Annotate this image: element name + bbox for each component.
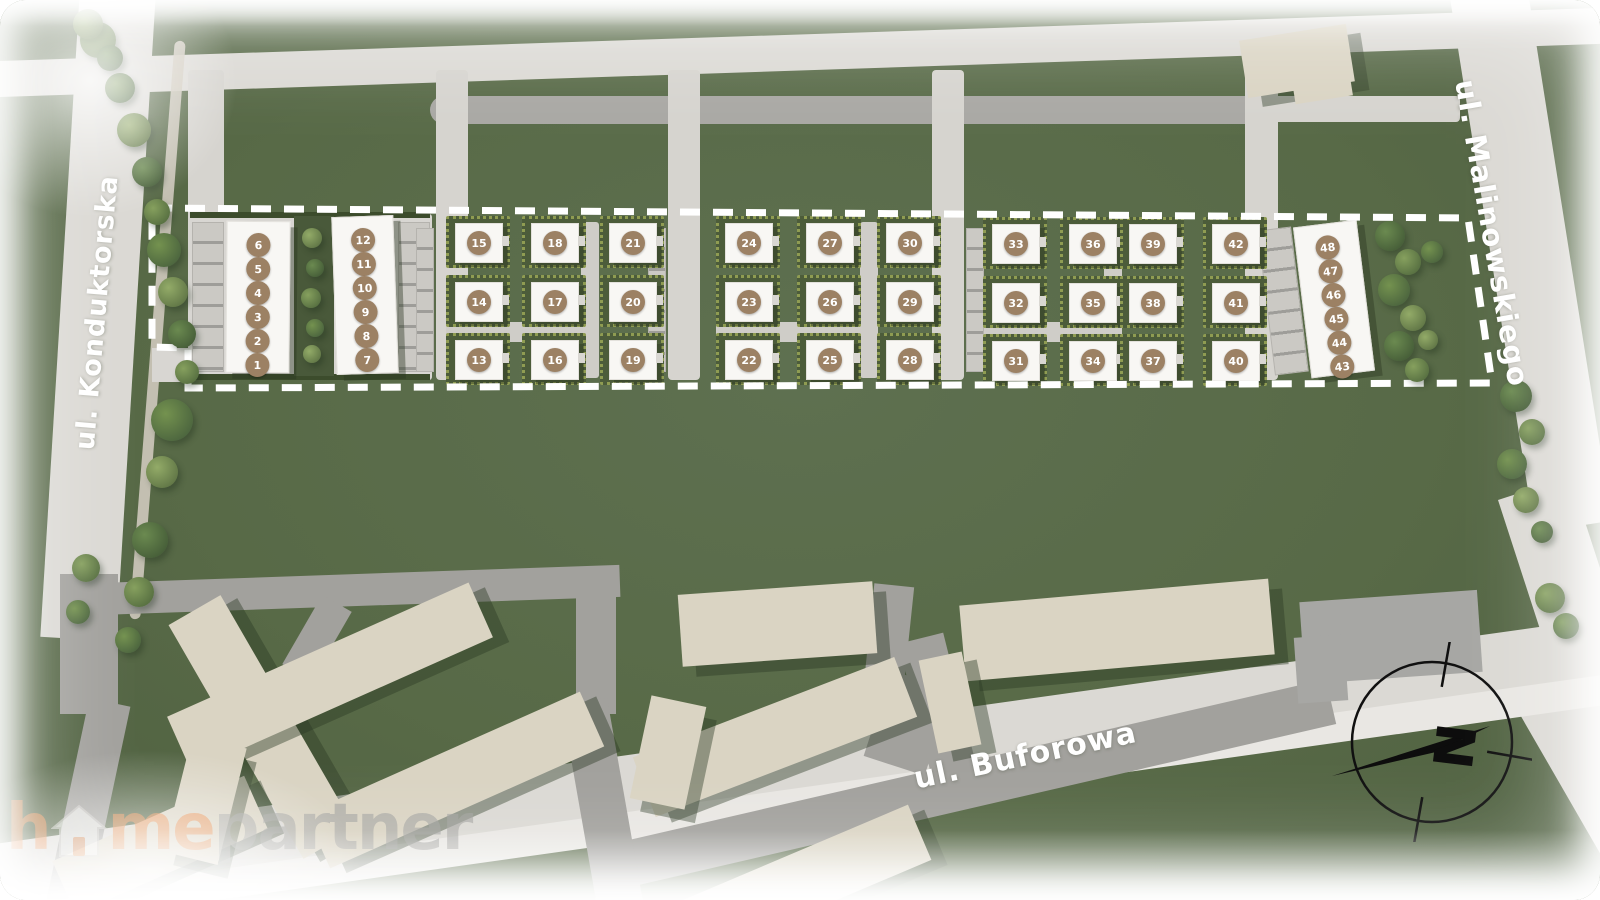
- parking-strip: [416, 228, 434, 372]
- unit-badge[interactable]: 17: [543, 290, 567, 314]
- unit-badge[interactable]: 13: [467, 348, 491, 372]
- unit-badge[interactable]: 29: [898, 290, 922, 314]
- unit-badge[interactable]: 40: [1224, 349, 1248, 373]
- tree: [132, 522, 168, 558]
- tree: [306, 259, 324, 277]
- tree: [1497, 449, 1527, 479]
- unit-badge[interactable]: 7: [355, 348, 380, 373]
- house-plot[interactable]: 16: [522, 333, 586, 385]
- unit-badge[interactable]: 3: [246, 305, 270, 329]
- unit-badge[interactable]: 32: [1004, 291, 1028, 315]
- site-plan-canvas: 654321 121110987 484746454443 1514131817…: [0, 0, 1600, 900]
- house-unit[interactable]: 37: [1129, 341, 1177, 381]
- logo-text-h: h: [6, 796, 50, 860]
- house-unit[interactable]: 36: [1069, 224, 1117, 264]
- house-plot[interactable]: 26: [797, 275, 861, 327]
- unit-badge[interactable]: 41: [1224, 291, 1248, 315]
- tree: [117, 113, 151, 147]
- unit-badge[interactable]: 48: [1314, 234, 1341, 261]
- tree: [144, 199, 170, 225]
- house-plot[interactable]: 25: [797, 333, 861, 385]
- unit-badge[interactable]: 39: [1141, 232, 1165, 256]
- tree: [115, 627, 141, 653]
- house-plot[interactable]: 32: [983, 276, 1047, 328]
- house-unit[interactable]: 39: [1129, 224, 1177, 264]
- unit-badge[interactable]: 33: [1004, 232, 1028, 256]
- tree: [1531, 521, 1553, 543]
- path: [60, 574, 118, 714]
- house-unit[interactable]: 17: [531, 282, 579, 322]
- tree: [132, 157, 162, 187]
- house-unit[interactable]: 25: [806, 340, 854, 380]
- house-plot[interactable]: 38: [1120, 276, 1184, 328]
- unit-badge[interactable]: 2: [246, 329, 270, 353]
- path: [95, 565, 621, 615]
- unit-badge[interactable]: 44: [1326, 329, 1353, 356]
- house-unit[interactable]: 38: [1129, 283, 1177, 323]
- tree: [105, 73, 135, 103]
- house-unit[interactable]: 28: [886, 340, 934, 380]
- house-plot[interactable]: 41: [1203, 276, 1267, 328]
- unit-badge[interactable]: 11: [352, 252, 377, 277]
- unit-badge[interactable]: 47: [1317, 258, 1344, 285]
- slab-building[interactable]: 654321: [225, 221, 290, 374]
- unit-badge[interactable]: 16: [543, 348, 567, 372]
- house-unit[interactable]: 15: [455, 223, 503, 263]
- unit-badge[interactable]: 26: [818, 290, 842, 314]
- unit-badge[interactable]: 23: [737, 290, 761, 314]
- unit-badge[interactable]: 21: [621, 231, 645, 255]
- unit-badge[interactable]: 30: [898, 231, 922, 255]
- unit-badge[interactable]: 10: [352, 276, 377, 301]
- house-plot[interactable]: 31: [983, 334, 1047, 386]
- unit-badge[interactable]: 1: [245, 353, 269, 377]
- house-unit[interactable]: 35: [1069, 283, 1117, 323]
- unit-badge[interactable]: 37: [1141, 349, 1165, 373]
- house-plot[interactable]: 18: [522, 216, 586, 268]
- unit-badge[interactable]: 38: [1141, 291, 1165, 315]
- house-plot[interactable]: 20: [600, 275, 664, 327]
- tree: [158, 277, 188, 307]
- house-plot[interactable]: 17: [522, 275, 586, 327]
- house-plot[interactable]: 35: [1060, 276, 1124, 328]
- house-plot[interactable]: 22: [716, 333, 780, 385]
- existing-building: [1289, 54, 1353, 105]
- tree: [1400, 305, 1426, 331]
- existing-building: [959, 579, 1274, 682]
- unit-badge[interactable]: 24: [737, 231, 761, 255]
- house-unit[interactable]: 27: [806, 223, 854, 263]
- tree: [301, 288, 321, 308]
- road-internal-gray: [430, 96, 1282, 124]
- unit-badge[interactable]: 43: [1329, 353, 1356, 380]
- logo-text-me: me: [108, 796, 214, 860]
- unit-badge[interactable]: 42: [1224, 232, 1248, 256]
- tree: [1405, 358, 1429, 382]
- house-plot[interactable]: 42: [1203, 217, 1267, 269]
- unit-badge[interactable]: 15: [467, 231, 491, 255]
- unit-badge[interactable]: 18: [543, 231, 567, 255]
- section-drive: [860, 222, 878, 378]
- tree: [72, 554, 100, 582]
- house-plot[interactable]: 29: [877, 275, 941, 327]
- tree: [151, 399, 193, 441]
- house-unit[interactable]: 26: [806, 282, 854, 322]
- tree: [147, 233, 181, 267]
- house-unit[interactable]: 22: [725, 340, 773, 380]
- house-unit[interactable]: 19: [609, 340, 657, 380]
- house-plot[interactable]: 30: [877, 216, 941, 268]
- house-unit[interactable]: 41: [1212, 283, 1260, 323]
- house-unit[interactable]: 23: [725, 282, 773, 322]
- tree: [1535, 583, 1565, 613]
- house-plot[interactable]: 40: [1203, 334, 1267, 386]
- house-plot[interactable]: 39: [1120, 217, 1184, 269]
- parking-strip: [966, 228, 984, 372]
- tree: [1553, 613, 1579, 639]
- house-unit[interactable]: 20: [609, 282, 657, 322]
- unit-badge[interactable]: 12: [351, 228, 376, 253]
- house-plot[interactable]: 14: [446, 275, 510, 327]
- unit-badge[interactable]: 22: [737, 348, 761, 372]
- house-plot[interactable]: 36: [1060, 217, 1124, 269]
- tree: [1418, 330, 1438, 350]
- unit-badge[interactable]: 20: [621, 290, 645, 314]
- house-plot[interactable]: 28: [877, 333, 941, 385]
- house-unit[interactable]: 33: [992, 224, 1040, 264]
- house-plot[interactable]: 13: [446, 333, 510, 385]
- unit-badge[interactable]: 5: [246, 257, 270, 281]
- house-unit[interactable]: 40: [1212, 341, 1260, 381]
- tree: [146, 456, 178, 488]
- house-unit[interactable]: 32: [992, 283, 1040, 323]
- unit-badge[interactable]: 14: [467, 290, 491, 314]
- tree: [306, 319, 324, 337]
- tree: [1384, 331, 1414, 361]
- tree: [1513, 487, 1539, 513]
- house-unit[interactable]: 34: [1069, 341, 1117, 381]
- logo-text-partner: partner: [214, 796, 472, 860]
- house-unit[interactable]: 31: [992, 341, 1040, 381]
- tree: [1378, 274, 1410, 306]
- tree: [124, 577, 154, 607]
- house-unit[interactable]: 24: [725, 223, 773, 263]
- house-icon: [51, 800, 107, 860]
- house-unit[interactable]: 13: [455, 340, 503, 380]
- parking-strip: [192, 222, 224, 372]
- unit-badge[interactable]: 36: [1081, 232, 1105, 256]
- tree: [168, 320, 196, 348]
- unit-badge[interactable]: 25: [818, 348, 842, 372]
- house-plot[interactable]: 34: [1060, 334, 1124, 386]
- path: [576, 574, 616, 714]
- house-plot[interactable]: 37: [1120, 334, 1184, 386]
- unit-badge[interactable]: 46: [1320, 282, 1347, 309]
- tree: [97, 45, 123, 71]
- existing-building: [678, 581, 878, 666]
- unit-badge[interactable]: 31: [1004, 349, 1028, 373]
- unit-badge[interactable]: 9: [353, 300, 378, 325]
- unit-badge[interactable]: 4: [246, 281, 270, 305]
- tree: [73, 9, 103, 39]
- slab-building[interactable]: 121110987: [331, 215, 398, 375]
- house-unit[interactable]: 16: [531, 340, 579, 380]
- unit-badge[interactable]: 28: [898, 348, 922, 372]
- house-unit[interactable]: 21: [609, 223, 657, 263]
- unit-badge[interactable]: 8: [354, 324, 379, 349]
- unit-badge[interactable]: 45: [1323, 305, 1350, 332]
- unit-badge[interactable]: 34: [1081, 349, 1105, 373]
- tree: [66, 600, 90, 624]
- house-unit[interactable]: 18: [531, 223, 579, 263]
- tree: [175, 360, 199, 384]
- house-plot[interactable]: 19: [600, 333, 664, 385]
- tree: [302, 228, 322, 248]
- access-road-3: [668, 70, 700, 380]
- house-plot[interactable]: 33: [983, 217, 1047, 269]
- road-top: [0, 6, 1600, 98]
- house-unit[interactable]: 42: [1212, 224, 1260, 264]
- house-unit[interactable]: 30: [886, 223, 934, 263]
- unit-badge[interactable]: 27: [818, 231, 842, 255]
- compass: N: [1332, 642, 1532, 842]
- tree: [1395, 249, 1421, 275]
- unit-badge[interactable]: 6: [246, 233, 270, 257]
- house-plot[interactable]: 21: [600, 216, 664, 268]
- house-plot[interactable]: 15: [446, 216, 510, 268]
- tree: [1519, 419, 1545, 445]
- road-connector-right: [1250, 96, 1460, 122]
- house-plot[interactable]: 23: [716, 275, 780, 327]
- compass-north-letter: N: [1419, 720, 1487, 773]
- tree: [303, 345, 321, 363]
- tree: [1421, 241, 1443, 263]
- house-unit[interactable]: 14: [455, 282, 503, 322]
- house-plot[interactable]: 24: [716, 216, 780, 268]
- tree: [1375, 221, 1405, 251]
- unit-badge[interactable]: 35: [1081, 291, 1105, 315]
- watermark-logo: h me partner: [6, 796, 471, 860]
- unit-badge[interactable]: 19: [621, 348, 645, 372]
- house-unit[interactable]: 29: [886, 282, 934, 322]
- house-plot[interactable]: 27: [797, 216, 861, 268]
